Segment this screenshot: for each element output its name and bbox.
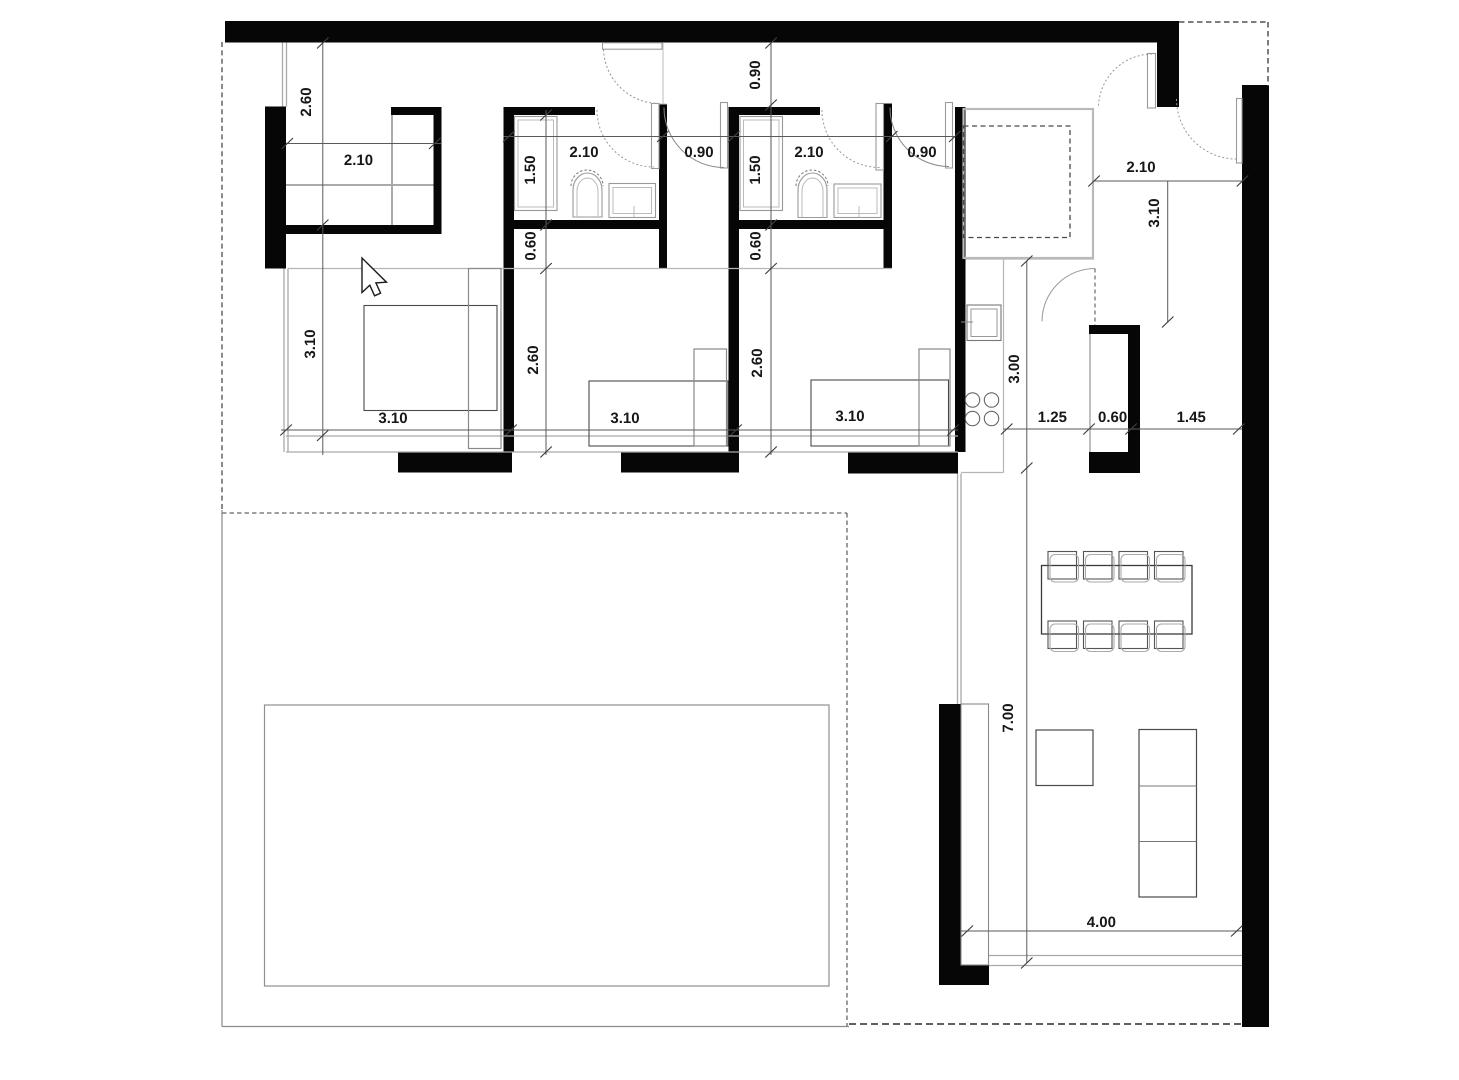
svg-text:1.50: 1.50 (747, 155, 764, 184)
svg-text:2.60: 2.60 (298, 87, 315, 116)
svg-text:0.90: 0.90 (747, 60, 764, 89)
svg-text:0.90: 0.90 (907, 144, 936, 161)
svg-text:2.10: 2.10 (569, 144, 598, 161)
svg-text:3.10: 3.10 (610, 410, 639, 427)
svg-text:4.00: 4.00 (1087, 914, 1116, 931)
svg-text:1.25: 1.25 (1038, 409, 1067, 426)
svg-text:2.60: 2.60 (525, 345, 542, 374)
svg-text:2.10: 2.10 (794, 144, 823, 161)
svg-text:3.00: 3.00 (1006, 354, 1023, 383)
svg-text:3.10: 3.10 (1146, 198, 1163, 227)
svg-text:3.10: 3.10 (835, 408, 864, 425)
svg-text:1.45: 1.45 (1177, 409, 1206, 426)
svg-text:2.60: 2.60 (749, 348, 766, 377)
svg-text:1.50: 1.50 (522, 155, 539, 184)
svg-text:0.60: 0.60 (1098, 409, 1127, 426)
svg-text:3.10: 3.10 (302, 329, 319, 358)
svg-text:3.10: 3.10 (378, 410, 407, 427)
svg-text:0.60: 0.60 (522, 231, 539, 260)
svg-text:7.00: 7.00 (1000, 703, 1017, 732)
svg-text:0.90: 0.90 (684, 144, 713, 161)
svg-text:0.60: 0.60 (747, 231, 764, 260)
svg-text:2.10: 2.10 (1126, 159, 1155, 176)
svg-text:2.10: 2.10 (344, 152, 373, 169)
